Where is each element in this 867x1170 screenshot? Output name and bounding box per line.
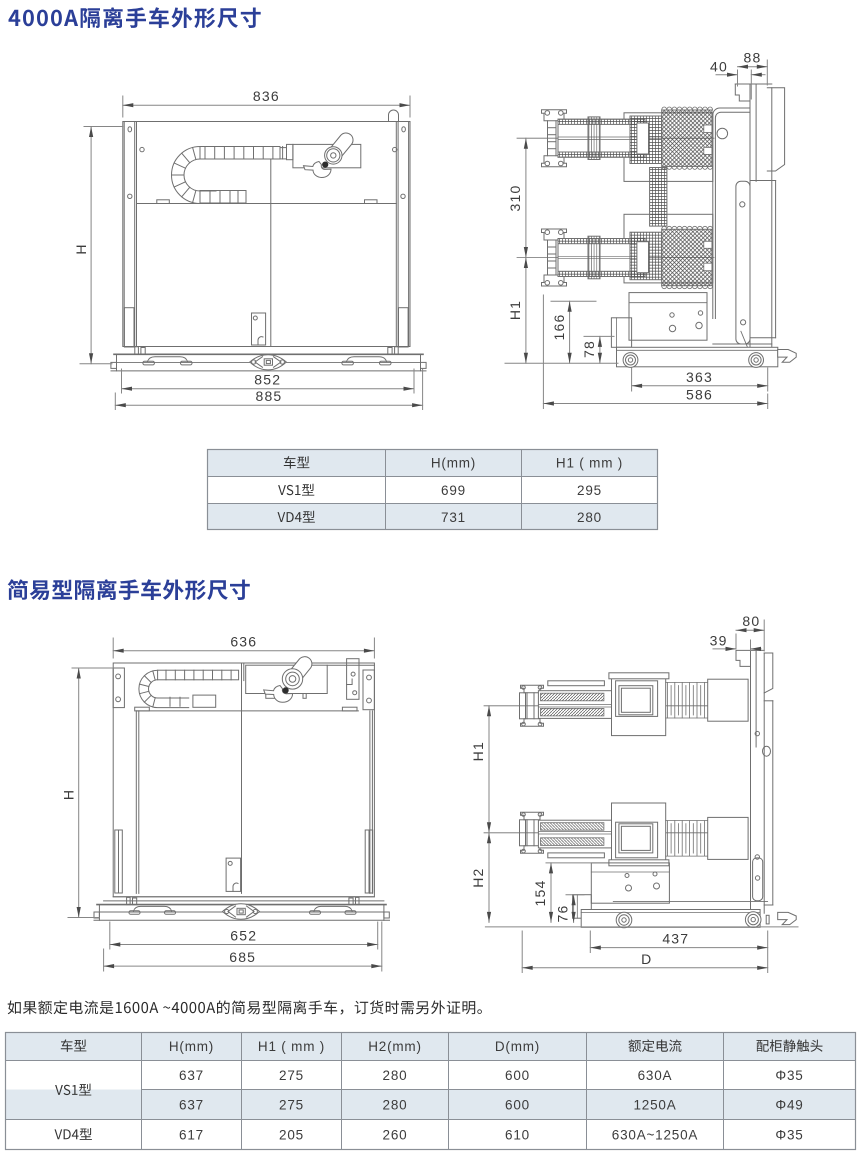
svg-text:437: 437: [662, 931, 689, 947]
svg-text:652: 652: [230, 928, 257, 944]
svg-text:280: 280: [577, 510, 602, 525]
svg-text:600: 600: [505, 1068, 530, 1083]
svg-text:H1 ( mm ): H1 ( mm ): [556, 456, 623, 471]
svg-text:699: 699: [441, 483, 466, 498]
svg-text:H1: H1: [507, 300, 523, 320]
svg-text:617: 617: [179, 1127, 204, 1142]
svg-text:630A: 630A: [638, 1068, 673, 1083]
svg-text:H: H: [61, 789, 77, 800]
svg-text:78: 78: [581, 340, 597, 358]
svg-text:76: 76: [555, 905, 571, 923]
svg-text:Φ49: Φ49: [775, 1098, 803, 1113]
svg-text:885: 885: [255, 388, 282, 404]
svg-text:39: 39: [710, 633, 728, 649]
svg-text:275: 275: [279, 1068, 304, 1083]
svg-text:D(mm): D(mm): [495, 1039, 540, 1054]
svg-text:H(mm): H(mm): [431, 456, 476, 471]
svg-text:280: 280: [383, 1098, 408, 1113]
svg-text:1250A: 1250A: [633, 1098, 676, 1113]
svg-text:H: H: [73, 243, 89, 254]
svg-text:205: 205: [279, 1127, 304, 1142]
svg-text:363: 363: [686, 369, 713, 385]
svg-text:310: 310: [507, 185, 523, 212]
svg-text:600: 600: [505, 1098, 530, 1113]
svg-text:280: 280: [383, 1068, 408, 1083]
svg-text:166: 166: [551, 314, 567, 341]
svg-text:H1 ( mm ): H1 ( mm ): [258, 1039, 325, 1054]
svg-text:685: 685: [229, 949, 256, 965]
svg-text:637: 637: [179, 1068, 204, 1083]
svg-text:260: 260: [383, 1127, 408, 1142]
svg-text:852: 852: [254, 372, 281, 388]
svg-text:H2(mm): H2(mm): [368, 1039, 422, 1054]
svg-text:275: 275: [279, 1098, 304, 1113]
svg-text:D: D: [641, 951, 652, 967]
svg-text:586: 586: [686, 387, 713, 403]
svg-text:637: 637: [179, 1098, 204, 1113]
svg-text:H(mm): H(mm): [169, 1039, 214, 1054]
svg-text:Φ35: Φ35: [775, 1127, 803, 1142]
svg-text:Φ35: Φ35: [775, 1068, 803, 1083]
svg-text:H1: H1: [470, 741, 486, 761]
svg-text:610: 610: [505, 1127, 530, 1142]
svg-text:731: 731: [441, 510, 466, 525]
svg-text:154: 154: [532, 880, 548, 907]
svg-text:636: 636: [230, 634, 257, 650]
svg-text:295: 295: [577, 483, 602, 498]
svg-text:630A~1250A: 630A~1250A: [612, 1127, 698, 1142]
svg-text:40: 40: [710, 59, 728, 75]
svg-text:88: 88: [744, 50, 762, 66]
svg-text:80: 80: [742, 613, 760, 629]
svg-text:H2: H2: [470, 867, 486, 887]
svg-text:836: 836: [253, 88, 280, 104]
